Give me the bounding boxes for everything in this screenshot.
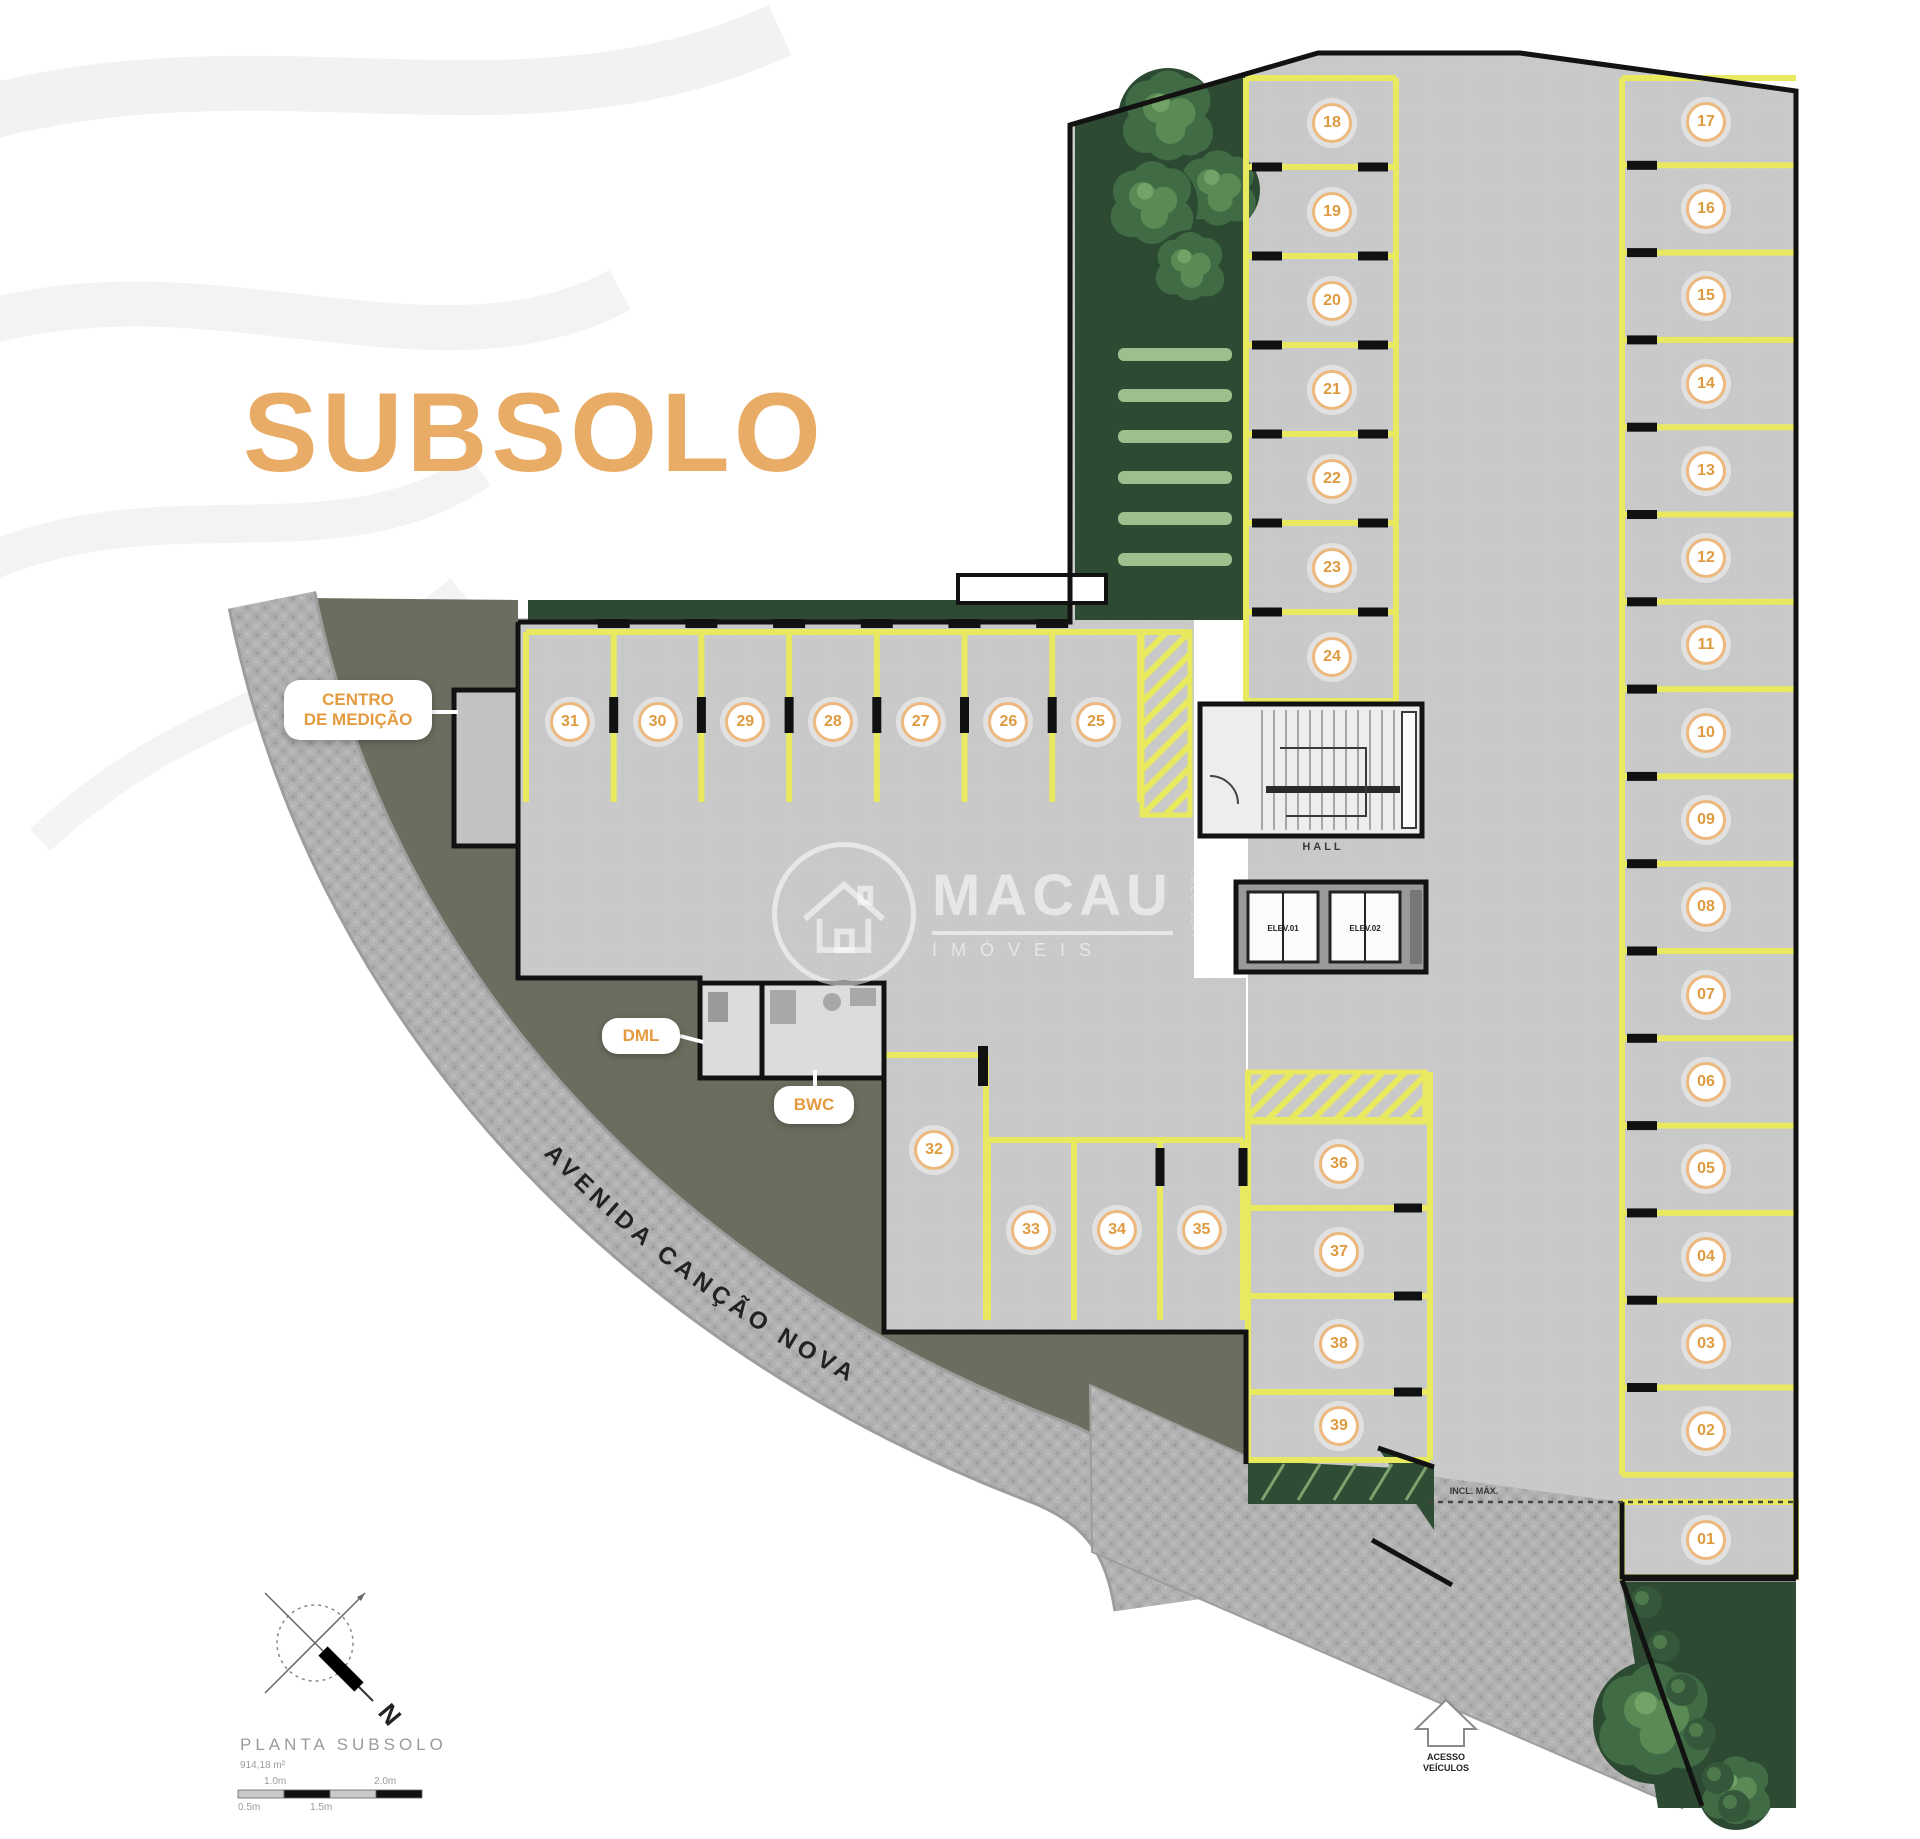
metering-room-label: CENTRO DE MEDIÇÃO xyxy=(284,680,432,740)
page-title: SUBSOLO xyxy=(243,368,825,497)
hall-label: HALL xyxy=(1302,841,1343,853)
dml-label: DML xyxy=(602,1018,680,1054)
svg-text:0.5m: 0.5m xyxy=(238,1802,260,1813)
tree xyxy=(1152,230,1228,306)
elevator-block xyxy=(1236,882,1426,972)
elevator-1-label: ELEV.01 xyxy=(1267,924,1299,933)
svg-text:ACESSO: ACESSO xyxy=(1427,1752,1465,1762)
brand-watermark: MACAU IMÓVEIS CRECI 9547 xyxy=(772,842,1199,986)
svg-text:1.5m: 1.5m xyxy=(310,1802,332,1813)
north-letter: N xyxy=(372,1698,407,1732)
plan-area: 914,18 m² xyxy=(240,1760,286,1771)
plan-name: PLANTA SUBSOLO xyxy=(240,1735,447,1754)
bwc-label: BWC xyxy=(774,1086,854,1124)
bwc-toilet xyxy=(823,993,841,1011)
metering-label-line2: DE MEDIÇÃO xyxy=(284,710,432,730)
north-compass: N xyxy=(265,1593,407,1731)
elevator-2-label: ELEV.02 xyxy=(1349,924,1381,933)
bwc-sink xyxy=(770,990,796,1024)
stairwell xyxy=(1200,704,1422,836)
legend-block: PLANTA SUBSOLO 914,18 m² 1.0m 2.0m 0.5m … xyxy=(238,1735,447,1813)
watermark-house-icon xyxy=(772,842,916,986)
metering-label-line1: CENTRO xyxy=(284,690,432,710)
bwc-counter xyxy=(850,988,876,1006)
svg-text:1.0m: 1.0m xyxy=(264,1776,286,1787)
watermark-registration: CRECI 9547 xyxy=(1189,869,1199,940)
watermark-brand: MACAU xyxy=(932,867,1173,925)
metering-room xyxy=(454,690,518,846)
dml-fixture xyxy=(708,992,728,1022)
floorplan-page: AVENIDA CANÇÃO NOVA HALL ELEV.01 ELEV.02… xyxy=(0,0,1920,1839)
hatch-zone-vertical xyxy=(1142,632,1190,815)
watermark-subtitle: IMÓVEIS xyxy=(932,940,1173,961)
svg-text:VEÍCULOS: VEÍCULOS xyxy=(1423,1763,1469,1773)
scale-bar: 1.0m 2.0m 0.5m 1.5m xyxy=(238,1776,422,1813)
vault-box xyxy=(958,575,1106,603)
hatch-zone-horizontal xyxy=(1248,1072,1425,1122)
ramp-incline-note: INCL. MÁX. xyxy=(1450,1486,1499,1496)
svg-text:2.0m: 2.0m xyxy=(374,1776,396,1787)
